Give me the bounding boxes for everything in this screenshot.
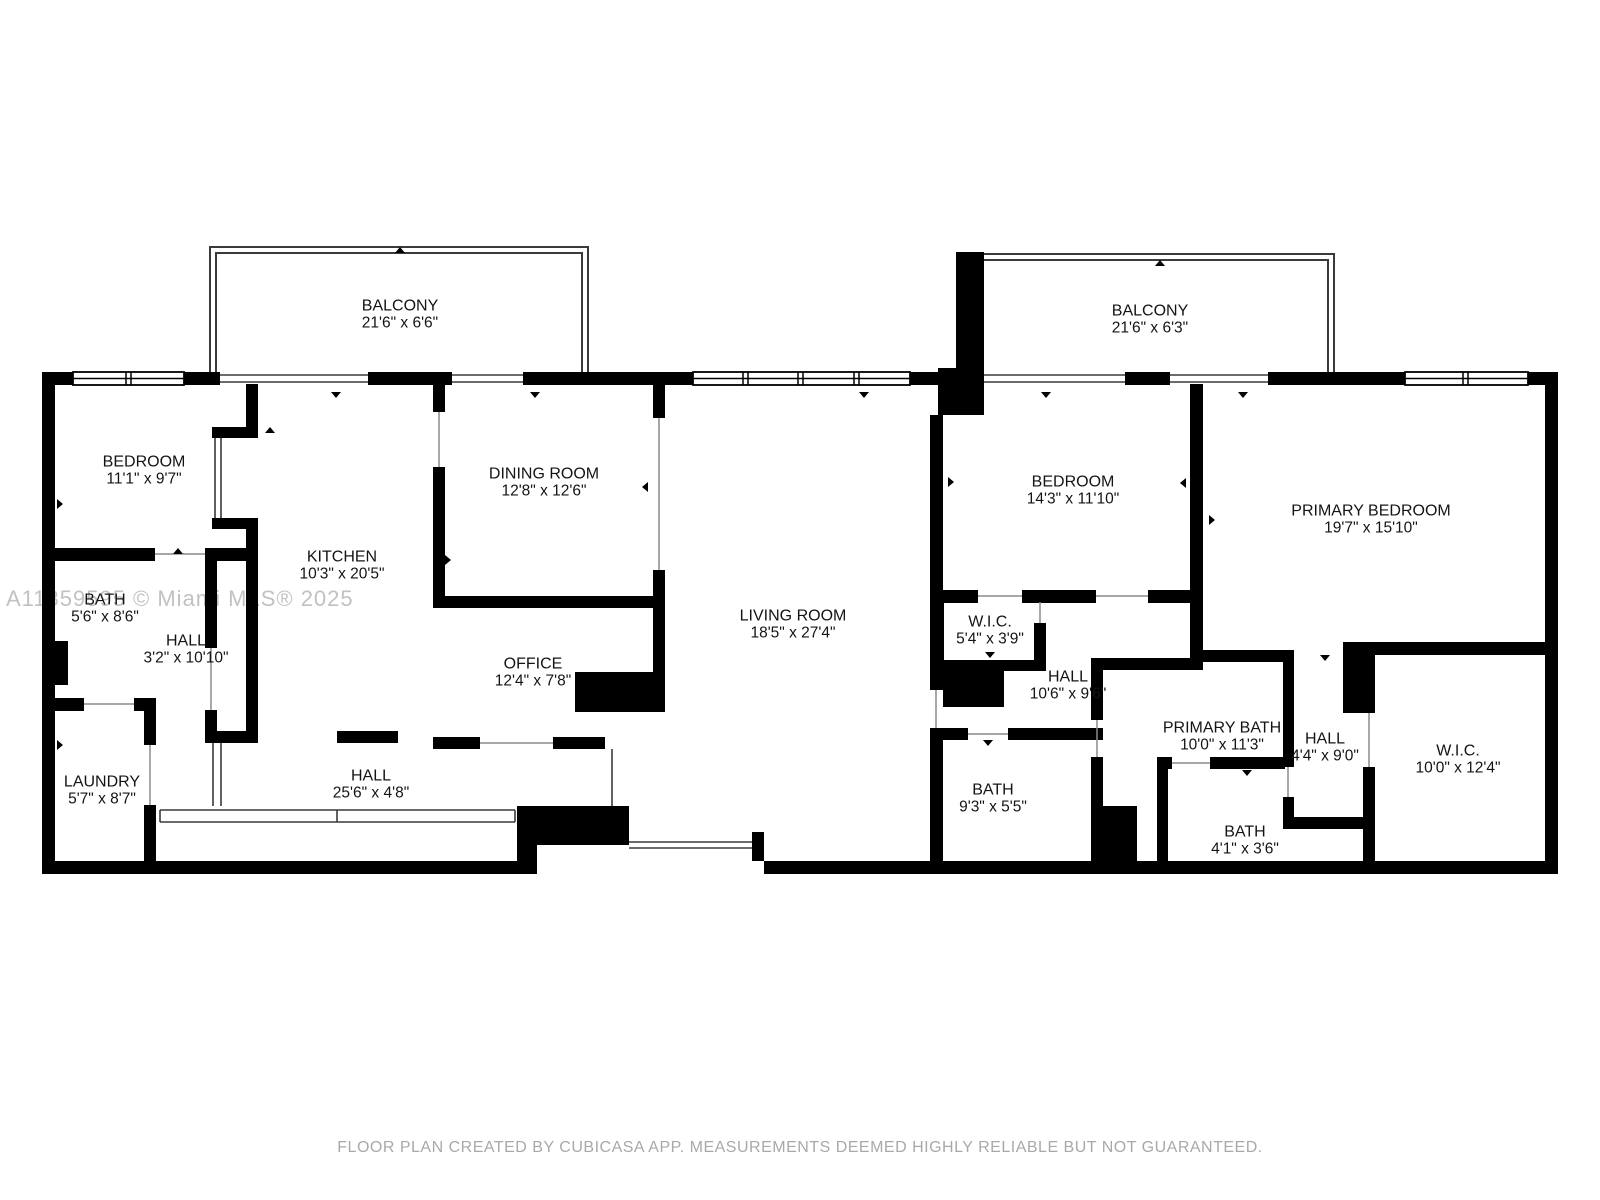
room-name: OFFICE <box>495 657 571 674</box>
room-dims: 12'8" x 12'6" <box>489 483 599 500</box>
room-label-bath-mid: BATH9'3" x 5'5" <box>959 783 1027 816</box>
room-label-laundry: LAUNDRY5'7" x 8'7" <box>64 775 140 808</box>
room-name: W.I.C. <box>1415 744 1500 761</box>
room-name: KITCHEN <box>299 550 384 567</box>
room-label-living-room: LIVING ROOM18'5" x 27'4" <box>740 609 847 642</box>
measurement-ticks <box>57 247 1460 868</box>
room-dims: 10'0" x 11'3" <box>1163 737 1281 754</box>
room-label-dining-room: DINING ROOM12'8" x 12'6" <box>489 467 599 500</box>
room-dims: 4'1" x 3'6" <box>1211 841 1279 858</box>
room-label-primary-bath: PRIMARY BATH10'0" x 11'3" <box>1163 721 1281 754</box>
room-dims: 5'6" x 8'6" <box>71 609 139 626</box>
room-name: HALL <box>143 634 228 651</box>
room-dims: 5'4" x 3'9" <box>956 631 1024 648</box>
room-name: HALL <box>333 769 409 786</box>
room-name: LAUNDRY <box>64 775 140 792</box>
room-name: DINING ROOM <box>489 467 599 484</box>
room-label-kitchen: KITCHEN10'3" x 20'5" <box>299 550 384 583</box>
room-dims: 4'4" x 9'0" <box>1291 748 1359 765</box>
room-name: HALL <box>1030 670 1106 687</box>
room-label-bath-small: BATH4'1" x 3'6" <box>1211 825 1279 858</box>
room-label-hall-right: HALL10'6" x 9'6" <box>1030 670 1106 703</box>
room-name: BATH <box>71 593 139 610</box>
floorplan-page: A11359595 © Miami MLS® 2025 <box>0 0 1600 1200</box>
room-dims: 18'5" x 27'4" <box>740 625 847 642</box>
room-dims: 10'0" x 12'4" <box>1415 760 1500 777</box>
room-dims: 21'6" x 6'3" <box>1112 320 1188 337</box>
room-label-bedroom-right: BEDROOM14'3" x 11'10" <box>1027 475 1119 508</box>
walls <box>42 252 1558 874</box>
room-label-bath-left: BATH5'6" x 8'6" <box>71 593 139 626</box>
room-label-hall-left: HALL3'2" x 10'10" <box>143 634 228 667</box>
room-dims: 9'3" x 5'5" <box>959 799 1027 816</box>
room-dims: 19'7" x 15'10" <box>1291 520 1450 537</box>
room-name: HALL <box>1291 732 1359 749</box>
room-label-hall-small: HALL4'4" x 9'0" <box>1291 732 1359 765</box>
room-dims: 21'6" x 6'6" <box>362 315 438 332</box>
room-name: BEDROOM <box>103 455 186 472</box>
room-dims: 3'2" x 10'10" <box>143 650 228 667</box>
room-label-office: OFFICE12'4" x 7'8" <box>495 657 571 690</box>
room-label-wic-big: W.I.C.10'0" x 12'4" <box>1415 744 1500 777</box>
room-name: LIVING ROOM <box>740 609 847 626</box>
room-name: PRIMARY BEDROOM <box>1291 504 1450 521</box>
room-name: BATH <box>1211 825 1279 842</box>
room-label-primary-bedroom: PRIMARY BEDROOM19'7" x 15'10" <box>1291 504 1450 537</box>
room-name: BALCONY <box>1112 304 1188 321</box>
room-dims: 10'3" x 20'5" <box>299 566 384 583</box>
room-dims: 11'1" x 9'7" <box>103 471 186 488</box>
room-name: W.I.C. <box>956 615 1024 632</box>
room-label-bedroom-left: BEDROOM11'1" x 9'7" <box>103 455 186 488</box>
room-label-balcony-left: BALCONY21'6" x 6'6" <box>362 299 438 332</box>
room-dims: 14'3" x 11'10" <box>1027 491 1119 508</box>
floorplan-drawing <box>0 0 1600 1200</box>
room-name: BATH <box>959 783 1027 800</box>
room-dims: 10'6" x 9'6" <box>1030 686 1106 703</box>
disclaimer-text: FLOOR PLAN CREATED BY CUBICASA APP. MEAS… <box>0 1139 1600 1157</box>
room-name: BEDROOM <box>1027 475 1119 492</box>
room-dims: 5'7" x 8'7" <box>64 791 140 808</box>
room-name: BALCONY <box>362 299 438 316</box>
room-label-balcony-right: BALCONY21'6" x 6'3" <box>1112 304 1188 337</box>
room-label-hall-bottom: HALL25'6" x 4'8" <box>333 769 409 802</box>
room-dims: 12'4" x 7'8" <box>495 673 571 690</box>
room-name: PRIMARY BATH <box>1163 721 1281 738</box>
room-label-wic-small: W.I.C.5'4" x 3'9" <box>956 615 1024 648</box>
room-dims: 25'6" x 4'8" <box>333 785 409 802</box>
